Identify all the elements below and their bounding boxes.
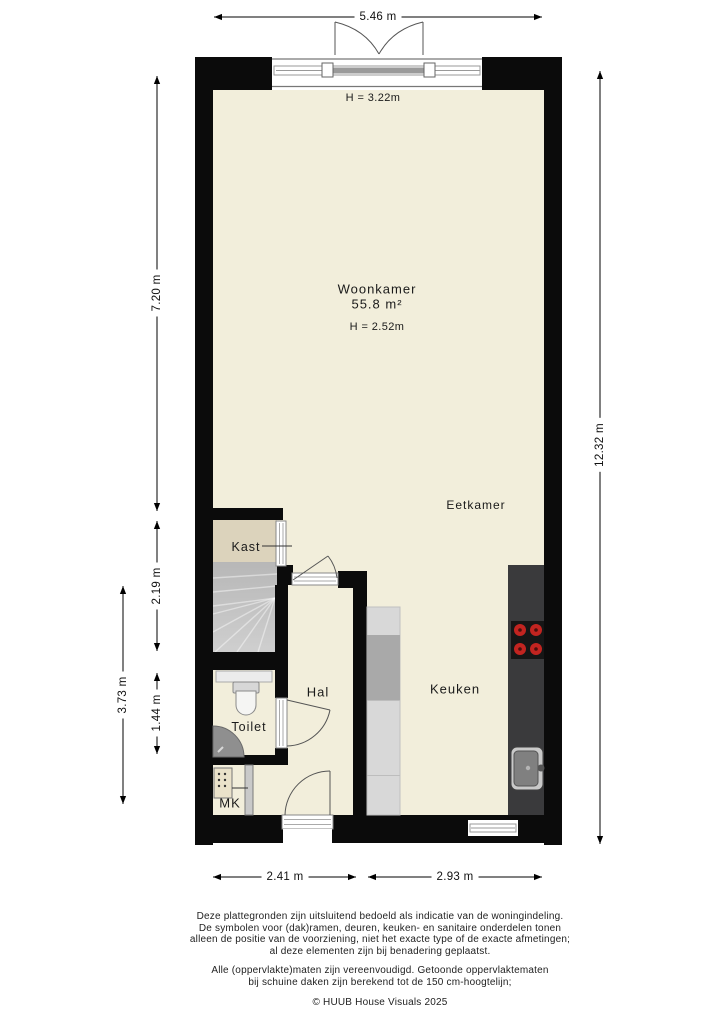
mk-door xyxy=(245,765,253,815)
french-door-swing-icon xyxy=(335,22,423,55)
label-toilet: Toilet xyxy=(231,720,266,734)
kitchen-counter xyxy=(508,565,545,815)
dim-label-left-living: 7.20 m xyxy=(151,270,163,317)
label-woonkamer-area: 55.8 m² xyxy=(351,297,402,312)
front-window-band xyxy=(272,22,482,88)
wall-top-right xyxy=(482,57,562,90)
stairs xyxy=(213,562,277,652)
dim-label-right: 12.32 m xyxy=(594,418,606,472)
wall-above-kast xyxy=(195,508,283,520)
wall-below-stairs xyxy=(195,652,288,670)
french-door-glass xyxy=(333,68,425,74)
label-keuken: Keuken xyxy=(430,682,480,697)
disclaimer-line: al deze elementen zijn bij benadering ge… xyxy=(18,946,724,958)
disclaimer-line: bij schuine daken zijn berekend tot de 1… xyxy=(18,977,724,989)
disclaimer-line: alleen de positie van de voorziening, ni… xyxy=(18,934,724,946)
wall-left xyxy=(195,57,213,845)
dim-label-bottom-left: 2.41 m xyxy=(262,871,309,883)
label-woonkamer: Woonkamer xyxy=(338,282,417,297)
dim-label-left-toilet: 1.44 m xyxy=(151,690,163,737)
wall-right xyxy=(544,57,562,845)
floorplan-drawing xyxy=(0,0,724,1024)
label-eetkamer: Eetkamer xyxy=(446,498,505,512)
window-mullion xyxy=(322,63,333,77)
label-height-front: H = 3.22m xyxy=(346,92,401,104)
footer-disclaimer: Deze plattegronden zijn uitsluitend bedo… xyxy=(18,911,724,1008)
dim-label-left-stairs: 2.19 m xyxy=(151,563,163,610)
dim-label-top: 5.46 m xyxy=(355,11,402,23)
dim-label-bottom-right: 2.93 m xyxy=(432,871,479,883)
disclaimer-line: Alle (oppervlakte)maten zijn vereenvoudi… xyxy=(18,965,724,977)
dim-label-left-outer: 3.73 m xyxy=(117,672,129,719)
label-kast: Kast xyxy=(231,540,260,554)
kitchen-window xyxy=(468,820,518,836)
toilet-bowl-icon xyxy=(236,691,256,715)
disclaimer-line: De symbolen voor (dak)ramen, deuren, keu… xyxy=(18,923,724,935)
copyright-line: © HUUB House Visuals 2025 xyxy=(18,997,724,1009)
floorplan-page: 5.46 m 12.32 m 7.20 m 2.19 m 1.44 m 3.73… xyxy=(0,0,724,1024)
wall-top-left xyxy=(195,57,272,90)
toilet-shelf xyxy=(216,671,272,682)
fridge-unit xyxy=(367,635,400,700)
wall-hal-keuken xyxy=(353,571,367,815)
disclaimer-line: Deze plattegronden zijn uitsluitend bedo… xyxy=(18,911,724,923)
label-mk: MK xyxy=(219,796,241,811)
window-mullion xyxy=(424,63,435,77)
label-hal: Hal xyxy=(307,685,330,700)
sink-icon xyxy=(511,747,545,790)
label-height-rear: H = 2.52m xyxy=(350,321,405,333)
kitchen-cabinets xyxy=(367,607,400,815)
